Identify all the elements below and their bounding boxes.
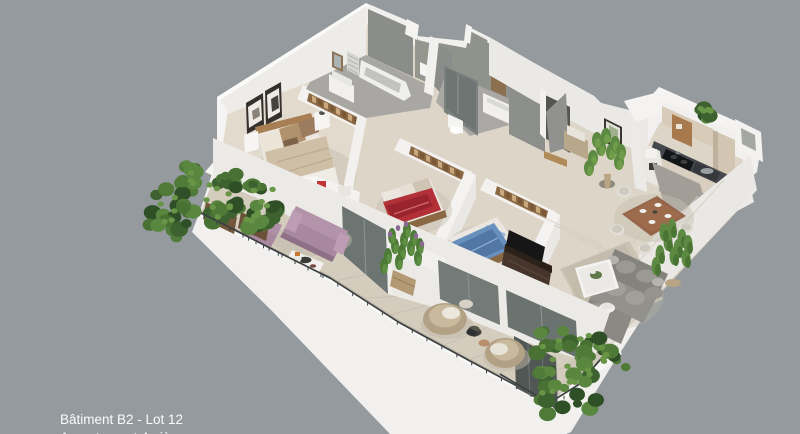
svg-text:Bâtiment B2 - Lot 12: Bâtiment B2 - Lot 12 bbox=[60, 412, 183, 427]
svg-text:Appartement 4 pièces: Appartement 4 pièces bbox=[60, 430, 192, 434]
